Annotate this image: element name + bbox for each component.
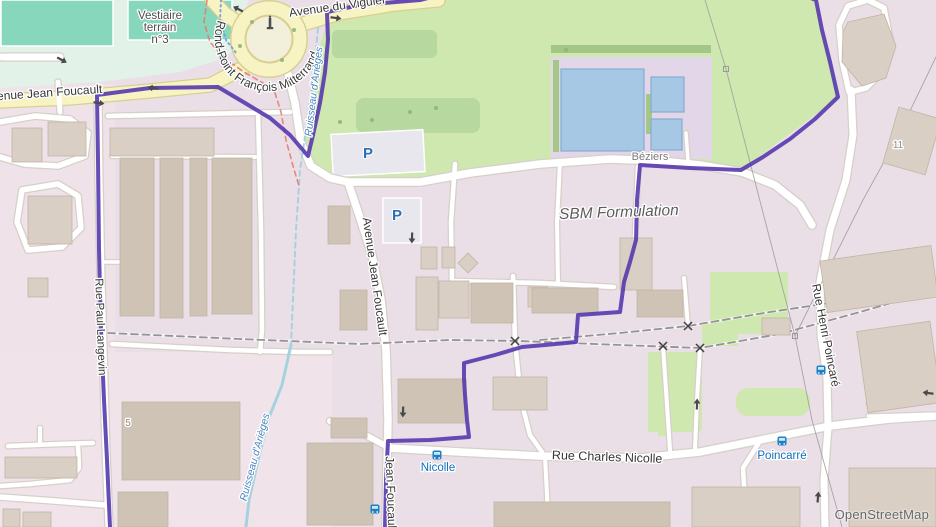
building [190, 158, 207, 316]
bus-stop-label-poincarre: Poincarré [757, 450, 806, 462]
sports-pitch [1, 0, 113, 46]
rect [433, 451, 442, 460]
building [416, 277, 438, 330]
rect [372, 506, 378, 509]
building [331, 418, 367, 438]
green-patch [736, 388, 810, 416]
circle [783, 443, 785, 445]
swimming-pool [651, 77, 684, 112]
building [122, 402, 240, 480]
circle [376, 511, 378, 513]
building [692, 487, 800, 527]
building [120, 158, 154, 316]
building [212, 158, 252, 314]
building [340, 290, 367, 330]
tree-icon [408, 110, 412, 114]
circle [818, 372, 820, 374]
building [12, 128, 42, 162]
rect [818, 367, 824, 370]
scrub-patch [332, 30, 437, 58]
building [857, 321, 936, 413]
circle [434, 457, 436, 459]
tree-icon [250, 20, 254, 24]
tree-icon [564, 48, 568, 52]
building [23, 512, 51, 527]
rect [267, 27, 273, 29]
building [532, 288, 598, 313]
hedge [553, 60, 559, 152]
parking-lot [331, 130, 425, 177]
circle [779, 443, 781, 445]
tree-icon [280, 58, 284, 62]
bus-stop-icon[interactable] [817, 366, 826, 375]
housenumber-5: 5 [125, 418, 131, 429]
tree-icon [238, 44, 242, 48]
service-road [868, 414, 930, 416]
rect [371, 505, 380, 514]
building [28, 196, 72, 244]
map-viewport[interactable]: PPRond-Point François MitterrandVestiair… [0, 0, 936, 527]
label-vestiaire-2: terrain [144, 22, 177, 34]
service-road [686, 133, 688, 160]
bus-stop-icon[interactable] [371, 505, 380, 514]
building [160, 158, 183, 318]
building [118, 492, 168, 527]
rect [434, 452, 440, 455]
bus-stop-icon[interactable] [433, 451, 442, 460]
osm-attribution[interactable]: OpenStreetMap [835, 507, 929, 522]
bus-stop-icon[interactable] [778, 437, 787, 446]
tree-icon [370, 118, 374, 122]
label-beziers: Béziers [632, 151, 669, 163]
building [110, 128, 214, 156]
building [494, 502, 670, 527]
building [398, 379, 466, 423]
building [307, 443, 373, 525]
circle [269, 16, 271, 18]
tree-icon [434, 106, 438, 110]
building [3, 509, 20, 527]
hedge [551, 45, 711, 53]
rect [778, 437, 787, 446]
bus-stop-label-nicolle: Nicolle [421, 462, 456, 474]
tree-icon [292, 28, 296, 32]
tree-icon [338, 120, 342, 124]
building [421, 247, 437, 269]
building [5, 457, 77, 478]
scrub-patch [356, 98, 480, 133]
building [471, 283, 513, 323]
building [442, 247, 455, 268]
rect [269, 18, 272, 27]
street-jean-foucault-south: Jean Foucault [383, 456, 400, 527]
building [637, 290, 683, 317]
parking-icon: P [392, 207, 402, 224]
building [762, 318, 790, 335]
building [493, 377, 547, 410]
building [439, 281, 469, 318]
circle [372, 511, 374, 513]
housenumber-11: 11 [893, 140, 904, 151]
rect [817, 366, 826, 375]
building [48, 122, 86, 156]
building [28, 278, 48, 297]
swimming-pool [651, 119, 682, 150]
label-vestiaire-1: Vestiaire [138, 10, 182, 22]
parking-icon: P [363, 145, 373, 162]
circle [822, 372, 824, 374]
map-canvas[interactable]: PPRond-Point François MitterrandVestiair… [0, 0, 936, 527]
swimming-pool [561, 69, 644, 151]
circle [438, 457, 440, 459]
building [328, 206, 350, 244]
rect [779, 438, 785, 441]
label-vestiaire-3: n°3 [151, 34, 168, 46]
